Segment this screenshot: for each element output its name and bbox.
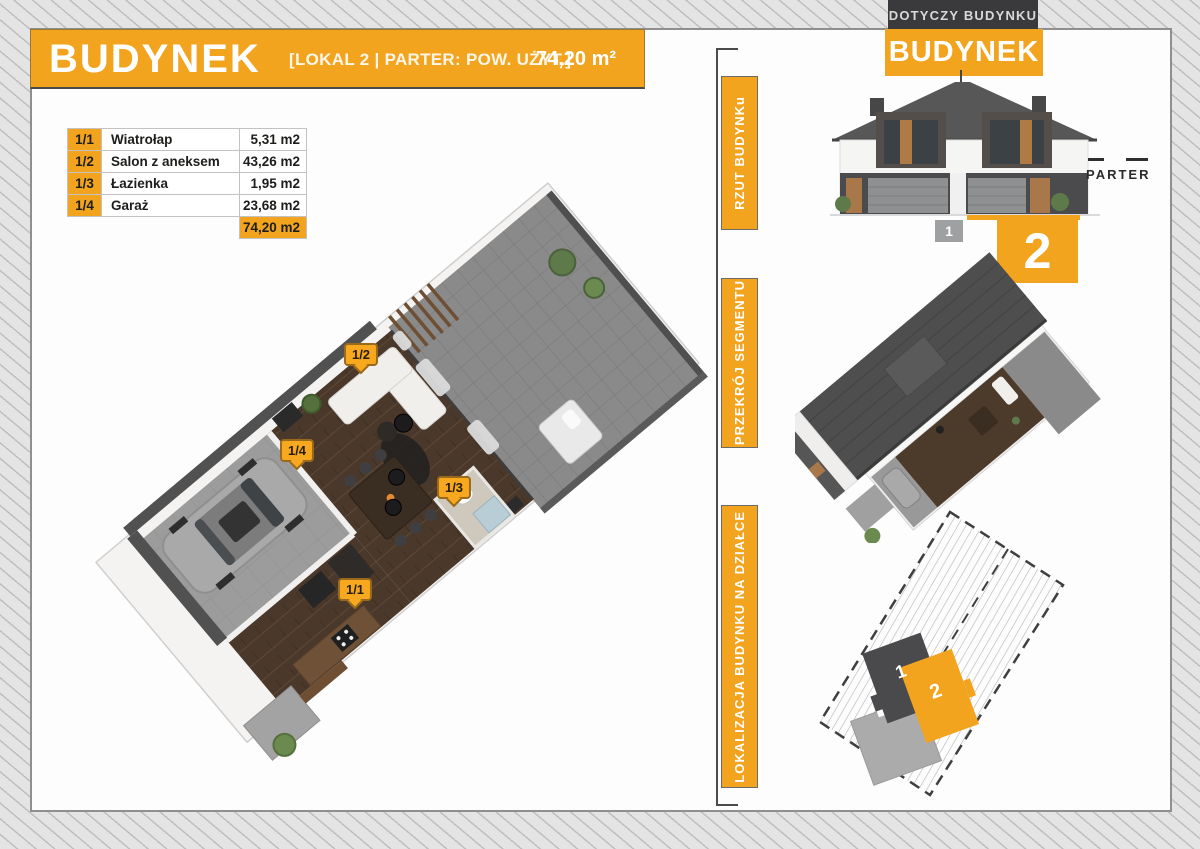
header-subtitle: [LOKAL 2 | PARTER: POW. UŻYT.] (289, 50, 571, 70)
header-area-value: 74,20 m² (536, 48, 616, 71)
facade-divider (950, 173, 966, 215)
main-header: BUDYNEK [LOKAL 2 | PARTER: POW. UŻYT.] 7… (30, 29, 645, 89)
sidebar-item-przekroj-segmentu: PRZEKRÓJ SEGMENTU (721, 278, 758, 448)
plan-marker-1-2: 1/2 (344, 343, 378, 366)
page-background: BUDYNEK [LOKAL 2 | PARTER: POW. UŻYT.] 7… (0, 0, 1200, 849)
elevation-unit1-badge: 1 (935, 220, 963, 242)
dormer-left (876, 112, 946, 168)
dormer-right (982, 112, 1052, 168)
sidebar-item-label: PRZEKRÓJ SEGMENTU (732, 280, 747, 445)
floor-plan-3d (60, 110, 720, 810)
sidebar-item-label: LOKALIZACJA BUDYNKU NA DZIAŁCE (732, 511, 747, 783)
floor-label-block: PARTER (1086, 158, 1150, 182)
sidebar-item-label: RZUT BUDYNKu (732, 96, 747, 210)
floor-plan-group (90, 176, 720, 771)
parter-dashes (1088, 158, 1148, 161)
page-title: BUDYNEK (49, 37, 261, 82)
plan-marker-1-3: 1/3 (437, 476, 471, 499)
sidebar-item-rzut-budynku: RZUT BUDYNKu (721, 76, 758, 230)
bush (835, 196, 851, 212)
plan-marker-1-4: 1/4 (280, 439, 314, 462)
sidebar-item-lokalizacja: LOKALIZACJA BUDYNKU NA DZIAŁCE (721, 505, 758, 788)
site-plan (800, 495, 1090, 807)
chimney (1032, 96, 1046, 114)
floor-label: PARTER (1086, 167, 1150, 182)
top-badge: DOTYCZY BUDYNKU (888, 0, 1038, 30)
bush (1051, 193, 1069, 211)
entry-door-right (1030, 178, 1050, 213)
plan-marker-1-1: 1/1 (338, 578, 372, 601)
